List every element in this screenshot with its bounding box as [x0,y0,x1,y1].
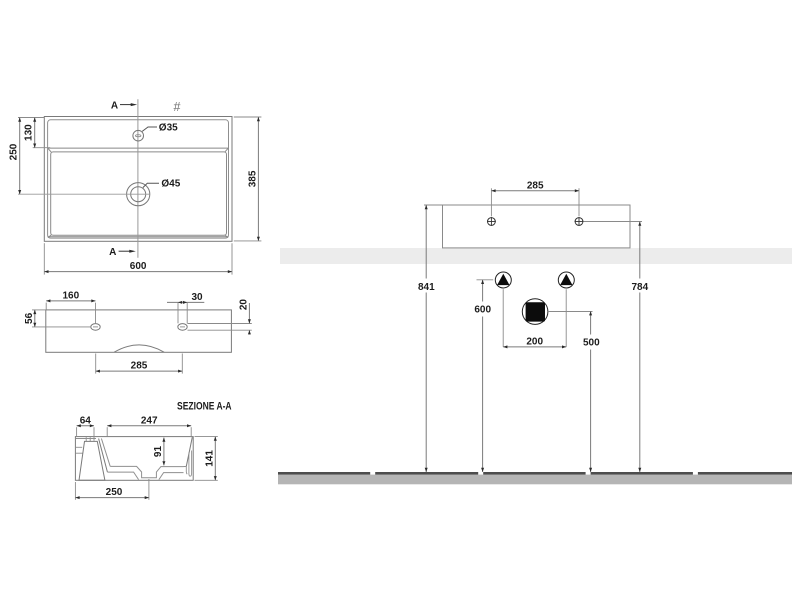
svg-text:Ø35: Ø35 [159,122,178,133]
svg-text:841: 841 [418,282,435,293]
svg-text:200: 200 [526,337,543,348]
svg-text:64: 64 [80,415,92,426]
svg-text:285: 285 [527,180,544,191]
svg-text:#: # [174,100,181,114]
svg-text:20: 20 [238,299,249,311]
svg-text:250: 250 [9,143,20,160]
svg-text:130: 130 [24,124,35,141]
svg-text:SEZIONE A-A: SEZIONE A-A [177,401,232,413]
svg-text:Ø45: Ø45 [161,179,180,190]
svg-text:160: 160 [63,291,80,302]
svg-text:56: 56 [24,312,35,324]
svg-text:600: 600 [474,305,491,316]
svg-text:91: 91 [153,446,164,458]
svg-text:600: 600 [130,261,147,272]
svg-text:30: 30 [191,292,203,303]
svg-text:247: 247 [141,415,158,426]
svg-text:500: 500 [583,338,600,349]
svg-text:285: 285 [131,361,148,372]
svg-text:250: 250 [106,487,123,498]
svg-text:385: 385 [247,170,258,187]
svg-text:A: A [109,247,116,258]
svg-text:A: A [111,100,118,111]
svg-text:784: 784 [631,282,648,293]
svg-text:141: 141 [204,450,215,467]
